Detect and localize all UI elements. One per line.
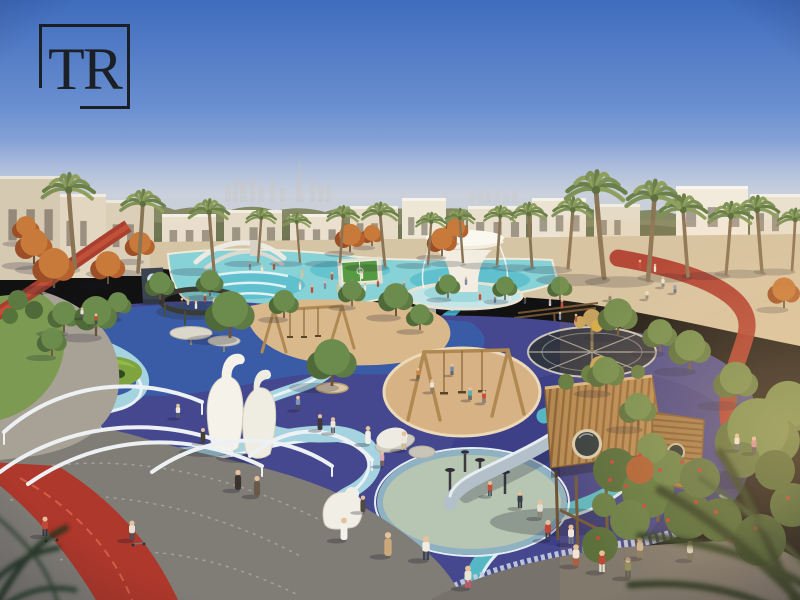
tr-logo-text: TR — [48, 39, 121, 99]
tr-logo-watermark: TR — [39, 24, 130, 109]
logo-frame-left — [39, 24, 42, 88]
logo-frame-bottom — [80, 106, 130, 109]
park-rendering: TR — [0, 0, 800, 600]
logo-frame-top — [39, 24, 130, 27]
logo-frame-right — [127, 24, 130, 109]
